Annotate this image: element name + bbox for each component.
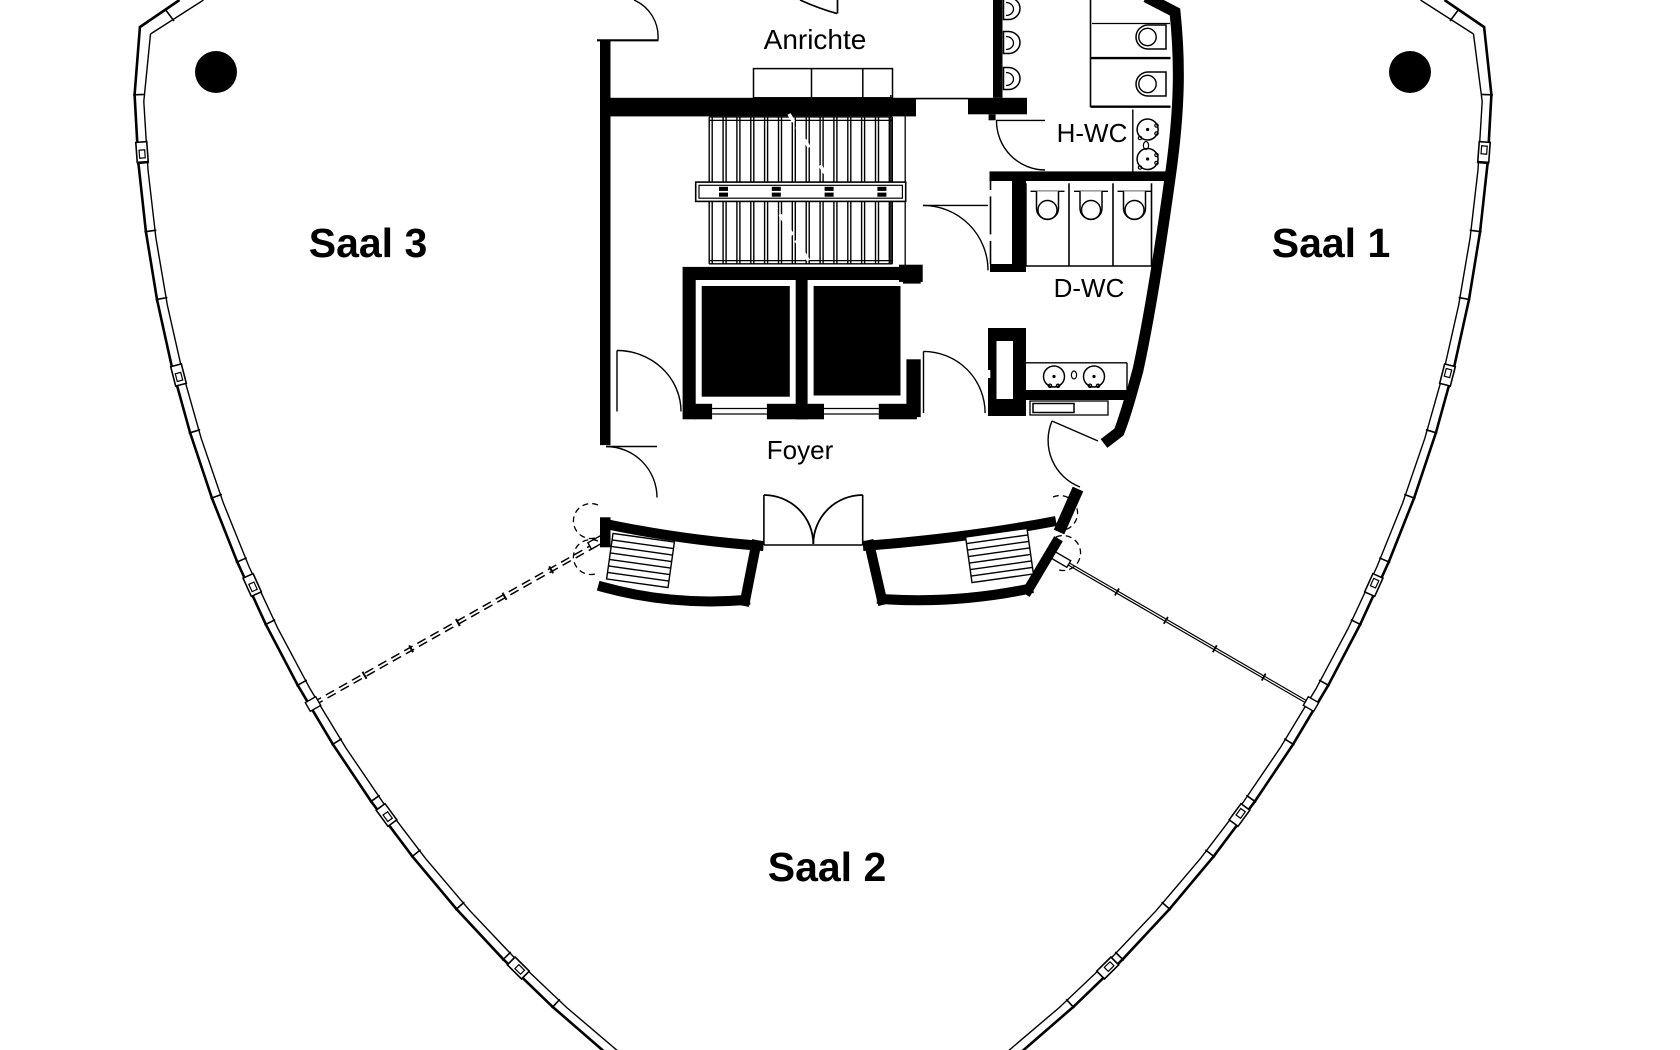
svg-text:Foyer: Foyer bbox=[767, 435, 834, 465]
svg-text:Saal 2: Saal 2 bbox=[768, 844, 887, 890]
svg-text:Saal 1: Saal 1 bbox=[1272, 220, 1391, 266]
svg-text:H-WC: H-WC bbox=[1057, 118, 1128, 148]
svg-text:Anrichte: Anrichte bbox=[764, 24, 867, 55]
svg-text:Saal 3: Saal 3 bbox=[309, 220, 428, 266]
svg-text:D-WC: D-WC bbox=[1054, 273, 1125, 303]
